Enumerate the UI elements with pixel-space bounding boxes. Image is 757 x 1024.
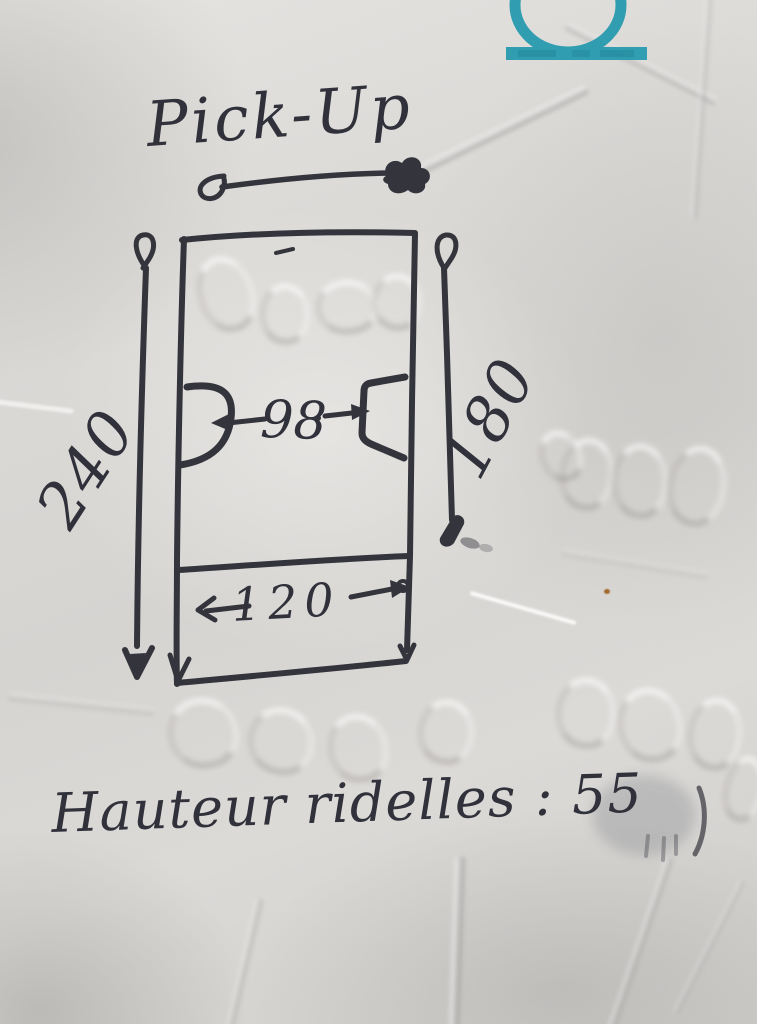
overall-length-dimension: 240	[21, 235, 154, 677]
arch-gap-dimension: 98	[211, 390, 370, 452]
teal-omega-logo-icon	[506, 0, 647, 60]
tailgate-divider-line	[179, 556, 409, 570]
dimension-240: 240	[21, 396, 150, 541]
small-dash	[276, 249, 293, 253]
note-group: Hauteur ridelles : 55	[49, 761, 704, 860]
dimension-120: 120	[230, 572, 341, 632]
tailgate-width-dimension: 120	[198, 572, 410, 632]
note-text: Hauteur ridelles : 55	[49, 761, 643, 845]
wheel-arch-right	[362, 377, 405, 458]
arrowhead-top	[437, 235, 456, 268]
dimension-98: 98	[259, 390, 327, 452]
sketch-drawing: Pick-Up 98	[0, 0, 757, 1024]
arrowhead-top	[136, 235, 153, 268]
arrowhead-left	[211, 414, 230, 431]
arrowhead-right	[383, 157, 430, 193]
note-smear	[695, 788, 704, 854]
inner-length-dimension: 180	[428, 235, 551, 553]
top-width-arrow	[200, 157, 430, 198]
paper-sheet: Pick-Up 98	[0, 0, 757, 1024]
arrowhead-bottom	[440, 515, 465, 546]
sketch-title: Pick-Up	[143, 70, 415, 161]
